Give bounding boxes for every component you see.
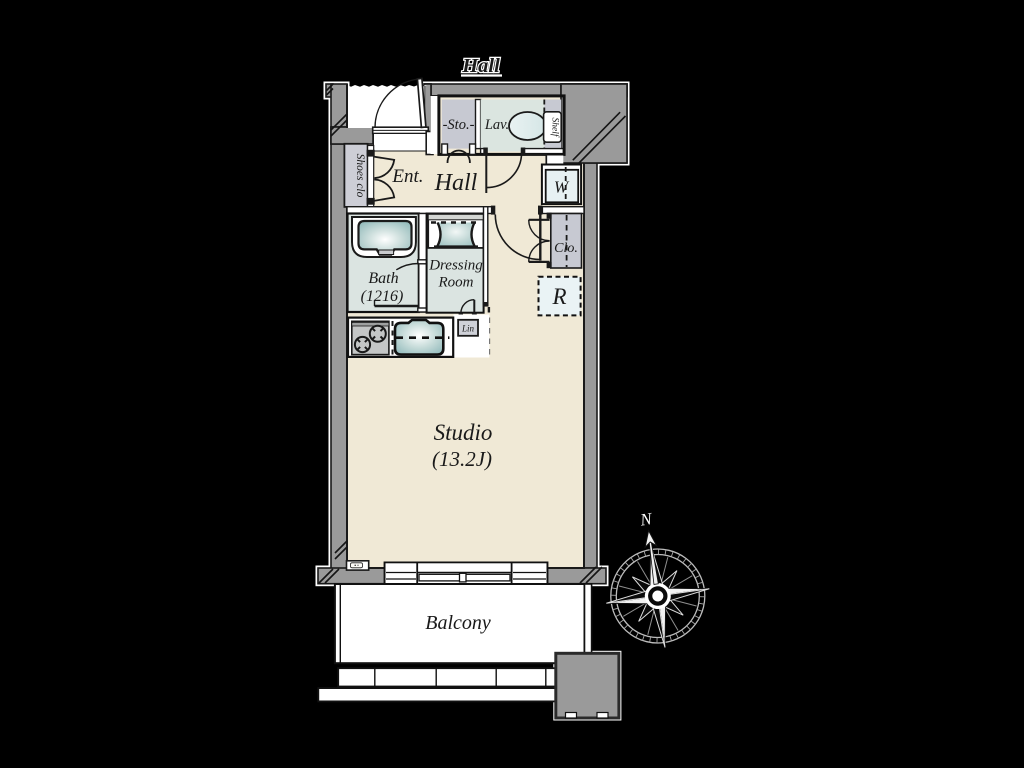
svg-text:W: W xyxy=(554,178,570,197)
svg-text:Balcony: Balcony xyxy=(425,612,491,634)
svg-text:(13.2J): (13.2J) xyxy=(432,447,492,471)
svg-text:Lav.: Lav. xyxy=(484,117,509,133)
svg-text:R: R xyxy=(551,284,566,309)
svg-text:(1216): (1216) xyxy=(361,288,404,305)
svg-text:Lin: Lin xyxy=(461,324,475,334)
svg-text:Room: Room xyxy=(438,275,474,291)
svg-text:Shelf: Shelf xyxy=(550,118,561,138)
svg-text:Shoes clo: Shoes clo xyxy=(354,154,366,198)
svg-text:Bath: Bath xyxy=(368,270,398,287)
svg-text:Hall: Hall xyxy=(434,170,478,196)
svg-text:-Sto.-: -Sto.- xyxy=(443,117,475,133)
svg-text:Hall: Hall xyxy=(461,55,500,77)
svg-text:Clo.: Clo. xyxy=(554,241,578,256)
svg-text:Ent.: Ent. xyxy=(391,166,423,187)
svg-text:Studio: Studio xyxy=(434,420,493,445)
svg-text:Dressing: Dressing xyxy=(428,258,483,274)
